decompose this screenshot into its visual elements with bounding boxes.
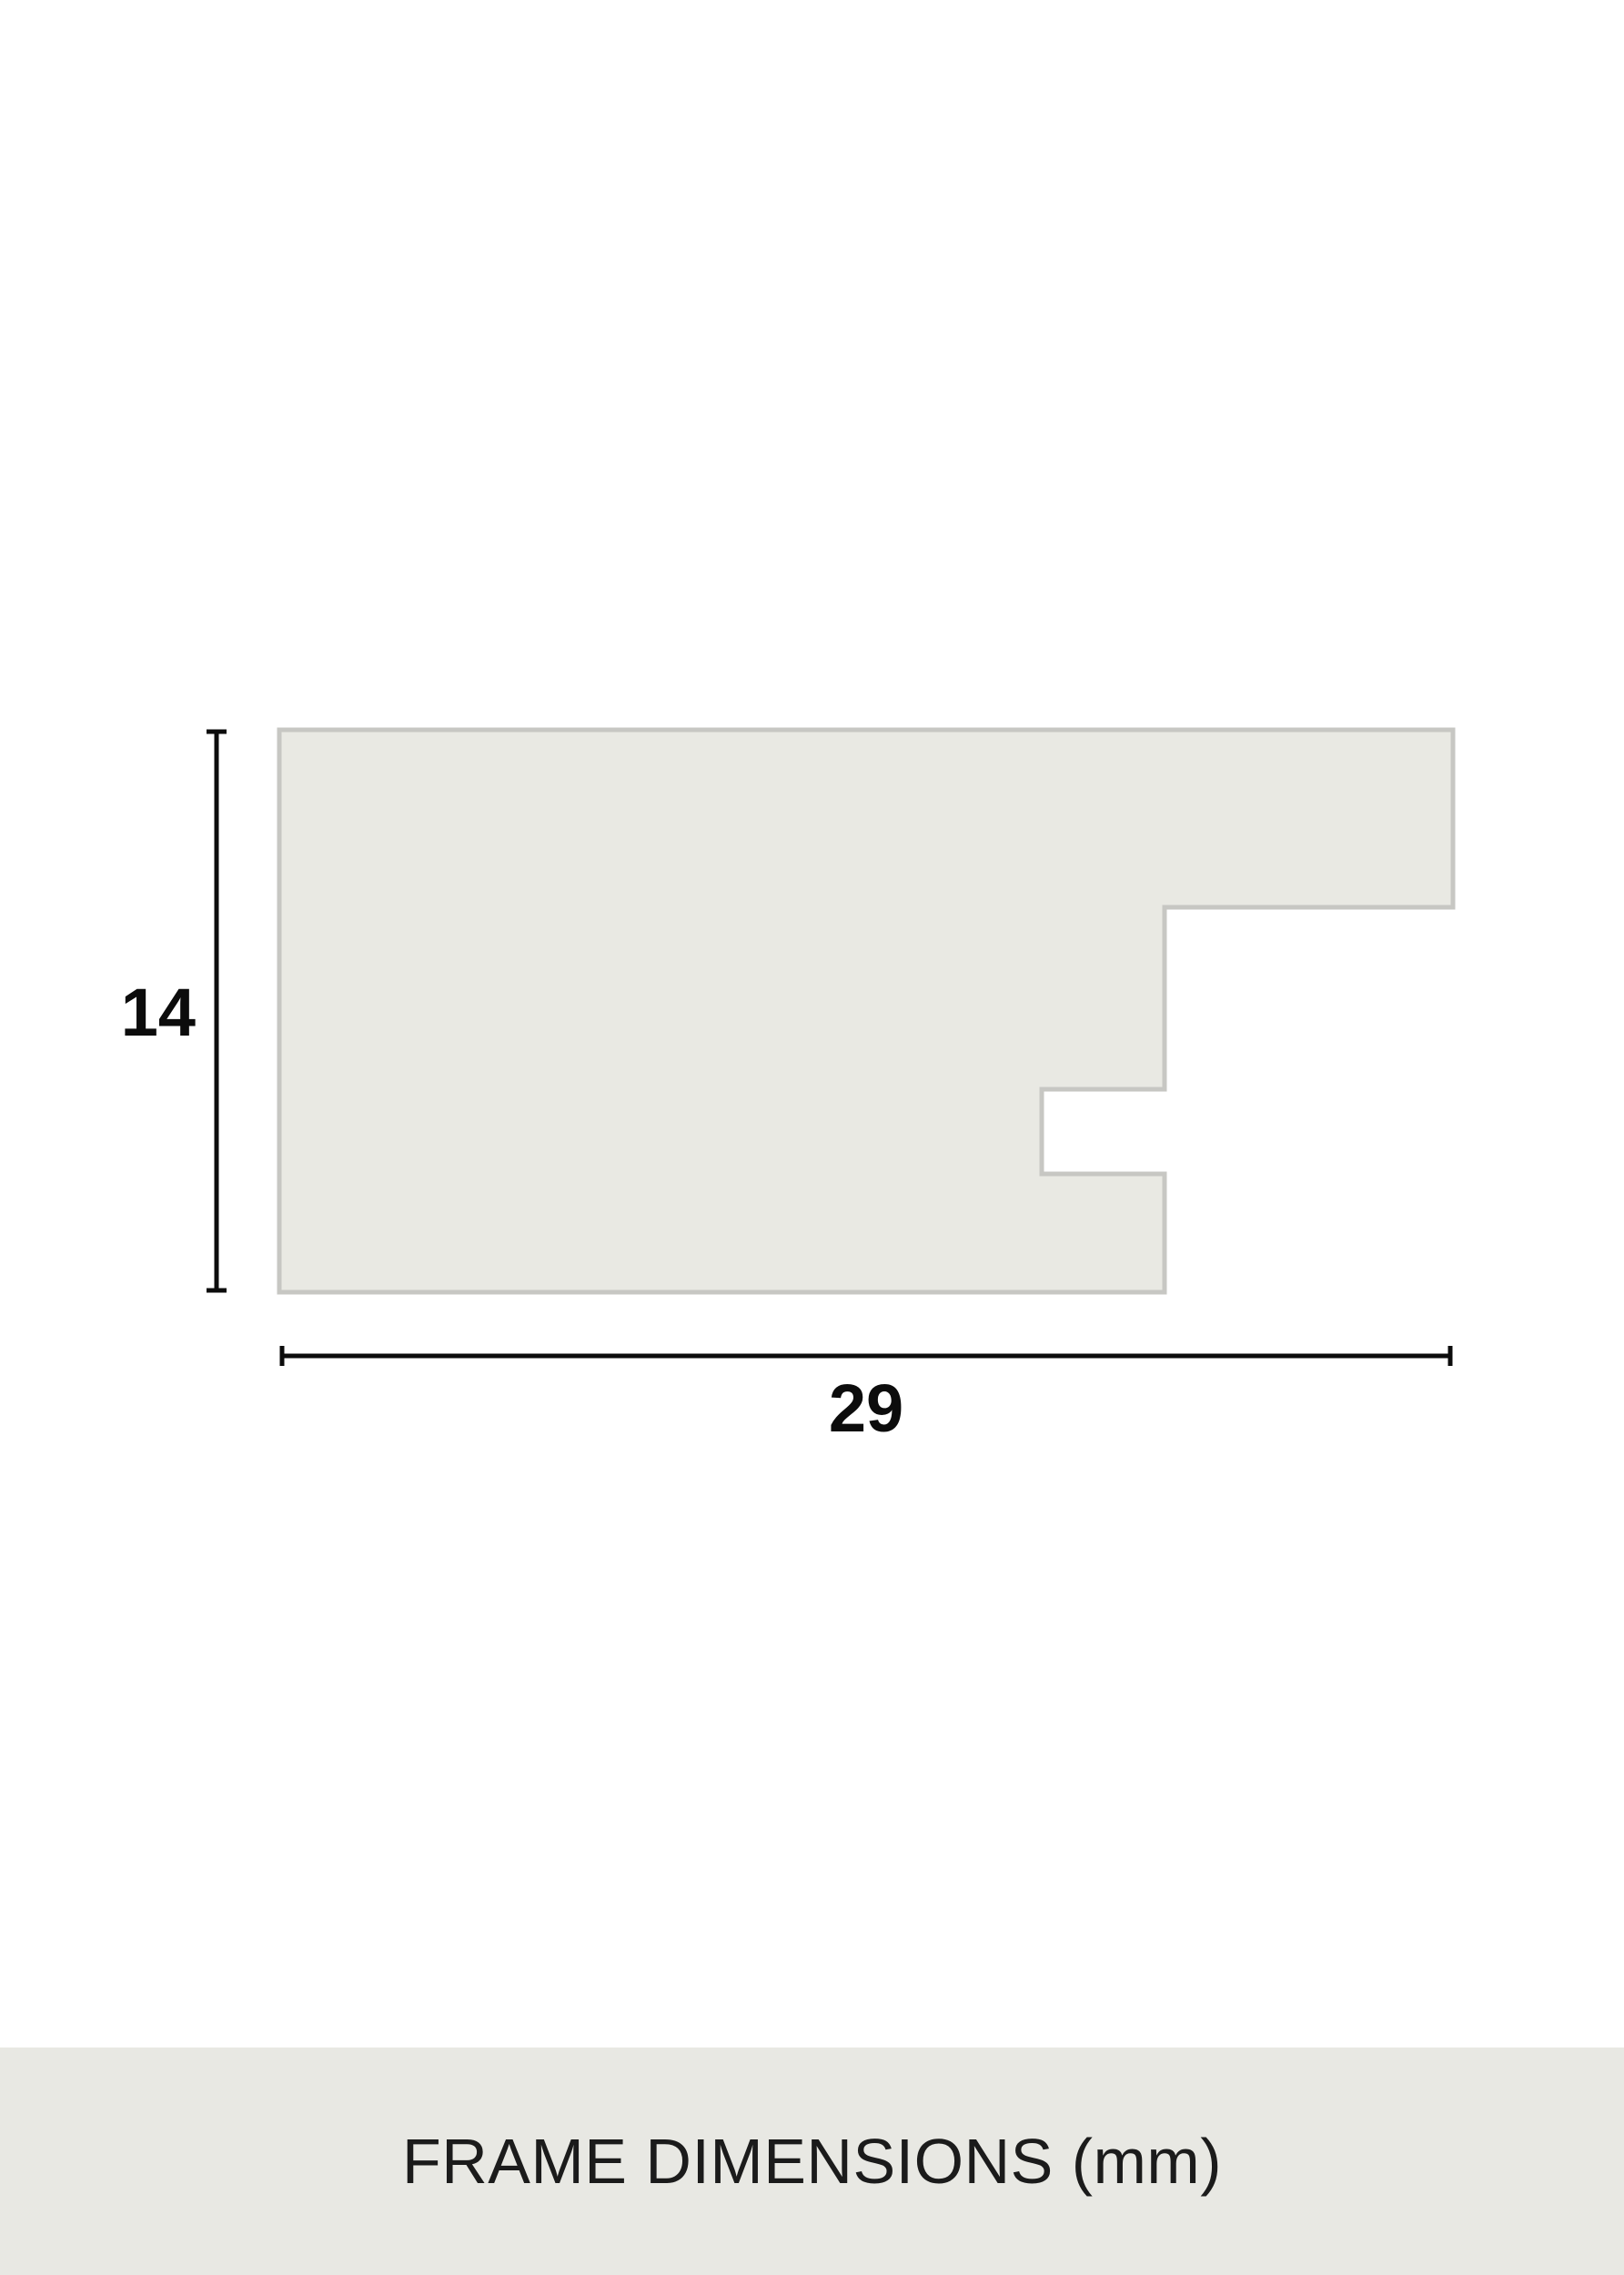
frame-profile-diagram: 14 29 (0, 0, 1624, 2047)
height-dimension: 14 (121, 732, 227, 1290)
height-dimension-label: 14 (121, 975, 196, 1050)
footer-bar: FRAME DIMENSIONS (mm) (0, 2047, 1624, 2275)
footer-title: FRAME DIMENSIONS (mm) (402, 2125, 1222, 2198)
frame-dimensions-page: 14 29 FRAME DIMENSIONS (mm) (0, 0, 1624, 2275)
width-dimension-label: 29 (829, 1370, 903, 1446)
frame-profile-shape (279, 730, 1453, 1292)
width-dimension: 29 (282, 1346, 1450, 1446)
